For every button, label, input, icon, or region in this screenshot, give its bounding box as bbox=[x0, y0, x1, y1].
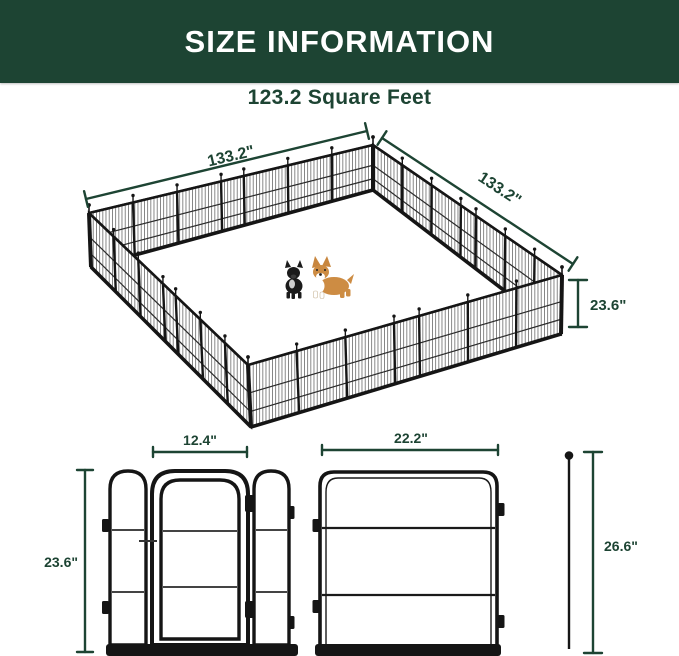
dimension-gate-height: 23.6" bbox=[44, 470, 93, 652]
size-information-infographic: SIZE INFORMATION 123.2 Square Feet bbox=[0, 0, 679, 656]
dimension-gate-width: 12.4" bbox=[153, 432, 247, 457]
gate-assembly-illustration bbox=[102, 471, 298, 656]
french-bulldog-illustration bbox=[285, 260, 303, 299]
corgi-illustration bbox=[312, 256, 354, 299]
hinge-icon bbox=[245, 495, 254, 512]
fence-panel-illustration bbox=[313, 472, 505, 656]
gate-height-label: 23.6" bbox=[44, 554, 78, 570]
dimension-stake-height: 26.6" bbox=[584, 452, 638, 653]
gate-width-label: 12.4" bbox=[183, 432, 217, 448]
dimension-pen-height: 23.6" bbox=[569, 280, 626, 327]
panel-width-label: 22.2" bbox=[394, 430, 428, 446]
dimension-panel-width: 22.2" bbox=[322, 430, 498, 455]
pen-height-label: 23.6" bbox=[590, 297, 626, 314]
pen-width-label: 133.2" bbox=[206, 143, 256, 170]
size-diagram: 133.2" 133.2" 23.6" bbox=[0, 112, 679, 656]
header-banner: SIZE INFORMATION bbox=[0, 0, 679, 83]
stake-height-label: 26.6" bbox=[604, 538, 638, 554]
ground-stake-icon bbox=[565, 451, 574, 649]
hinge-icon bbox=[245, 601, 254, 618]
area-label: 123.2 Square Feet bbox=[0, 83, 679, 112]
page-title: SIZE INFORMATION bbox=[185, 24, 495, 60]
